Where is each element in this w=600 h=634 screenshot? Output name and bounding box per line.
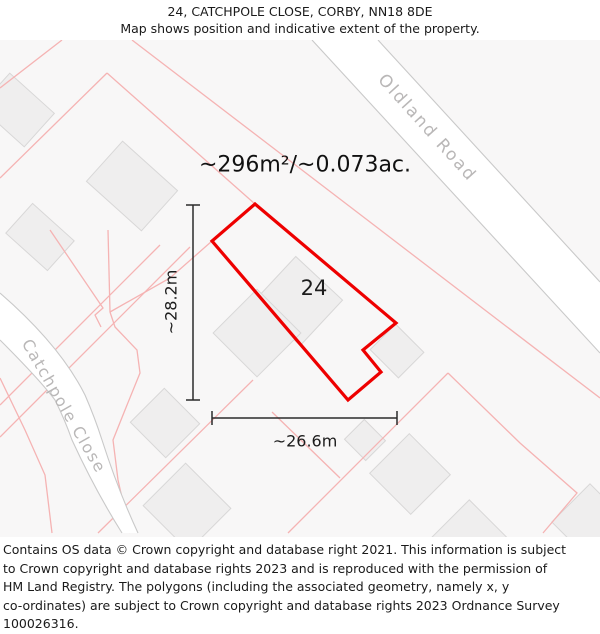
- header: 24, CATCHPOLE CLOSE, CORBY, NN18 8DE Map…: [0, 0, 600, 40]
- height-dimension-label: ~28.2m: [162, 270, 181, 335]
- page-subtitle: Map shows position and indicative extent…: [0, 21, 600, 38]
- map-container: Oldland Road Catchpole Close 24 ~296m²/~…: [0, 40, 600, 537]
- area-label: ~296m²/~0.073ac.: [199, 153, 411, 178]
- width-dimension-label: ~26.6m: [273, 432, 338, 451]
- property-map: Oldland Road Catchpole Close 24 ~296m²/~…: [0, 40, 600, 537]
- copyright-line: co-ordinates) are subject to Crown copyr…: [3, 597, 597, 616]
- copyright-line: to Crown copyright and database rights 2…: [3, 560, 597, 579]
- plot-number-label: 24: [301, 276, 328, 300]
- copyright-line: HM Land Registry. The polygons (includin…: [3, 578, 597, 597]
- copyright-notice: Contains OS data © Crown copyright and d…: [0, 537, 600, 625]
- copyright-line: Contains OS data © Crown copyright and d…: [3, 541, 597, 560]
- page-title: 24, CATCHPOLE CLOSE, CORBY, NN18 8DE: [0, 4, 600, 21]
